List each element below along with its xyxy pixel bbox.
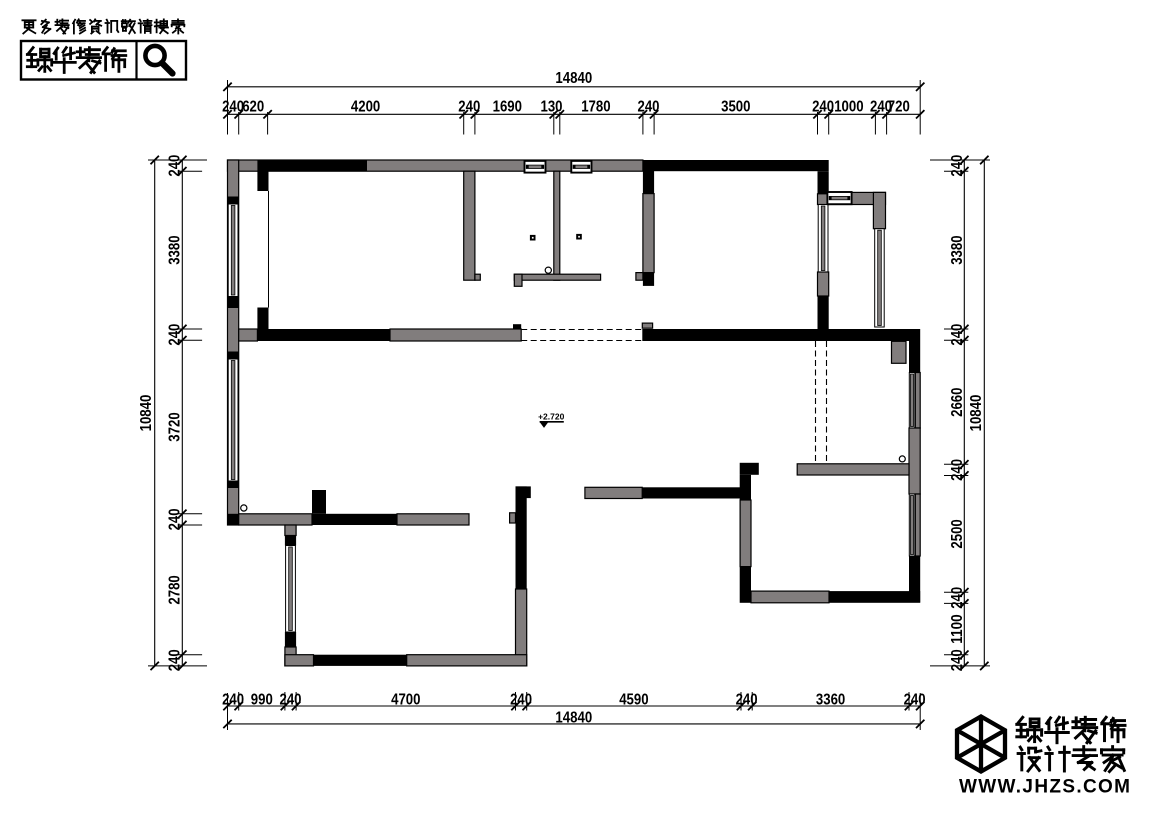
svg-text:2660: 2660	[949, 388, 966, 417]
svg-text:10840: 10840	[968, 395, 985, 432]
svg-text:240: 240	[166, 324, 183, 346]
svg-text:14840: 14840	[555, 709, 592, 726]
svg-text:3720: 3720	[166, 412, 183, 441]
svg-text:WWW.JHZS.COM: WWW.JHZS.COM	[959, 777, 1130, 798]
svg-text:240: 240	[949, 459, 966, 481]
svg-text:10840: 10840	[138, 395, 155, 432]
svg-text:4700: 4700	[391, 692, 420, 709]
svg-text:240: 240	[949, 587, 966, 609]
svg-text:240: 240	[166, 155, 183, 177]
svg-text:240: 240	[736, 692, 758, 709]
svg-text:130: 130	[541, 98, 563, 115]
svg-text:240: 240	[949, 324, 966, 346]
svg-text:3380: 3380	[949, 235, 966, 264]
svg-text:1000: 1000	[834, 98, 863, 115]
svg-text:1780: 1780	[581, 98, 610, 115]
svg-text:240: 240	[812, 98, 834, 115]
svg-text:2780: 2780	[166, 575, 183, 604]
svg-text:240: 240	[949, 649, 966, 671]
svg-text:240: 240	[222, 98, 244, 115]
svg-text:4590: 4590	[619, 692, 648, 709]
svg-text:240: 240	[280, 692, 302, 709]
svg-text:620: 620	[242, 98, 264, 115]
svg-text:240: 240	[949, 155, 966, 177]
svg-text:240: 240	[166, 649, 183, 671]
svg-text:1690: 1690	[493, 98, 522, 115]
svg-text:2500: 2500	[949, 519, 966, 548]
svg-text:1100: 1100	[949, 614, 966, 643]
svg-text:240: 240	[458, 98, 480, 115]
svg-text:3380: 3380	[166, 235, 183, 264]
svg-text:3500: 3500	[721, 98, 750, 115]
svg-text:+2.720: +2.720	[538, 412, 565, 422]
svg-text:4200: 4200	[351, 98, 380, 115]
svg-text:990: 990	[251, 692, 273, 709]
svg-text:3360: 3360	[816, 692, 845, 709]
svg-text:720: 720	[888, 98, 910, 115]
svg-text:240: 240	[638, 98, 660, 115]
svg-text:240: 240	[222, 692, 244, 709]
svg-text:240: 240	[166, 508, 183, 530]
svg-text:14840: 14840	[555, 70, 592, 87]
svg-text:240: 240	[904, 692, 926, 709]
svg-text:240: 240	[510, 692, 532, 709]
